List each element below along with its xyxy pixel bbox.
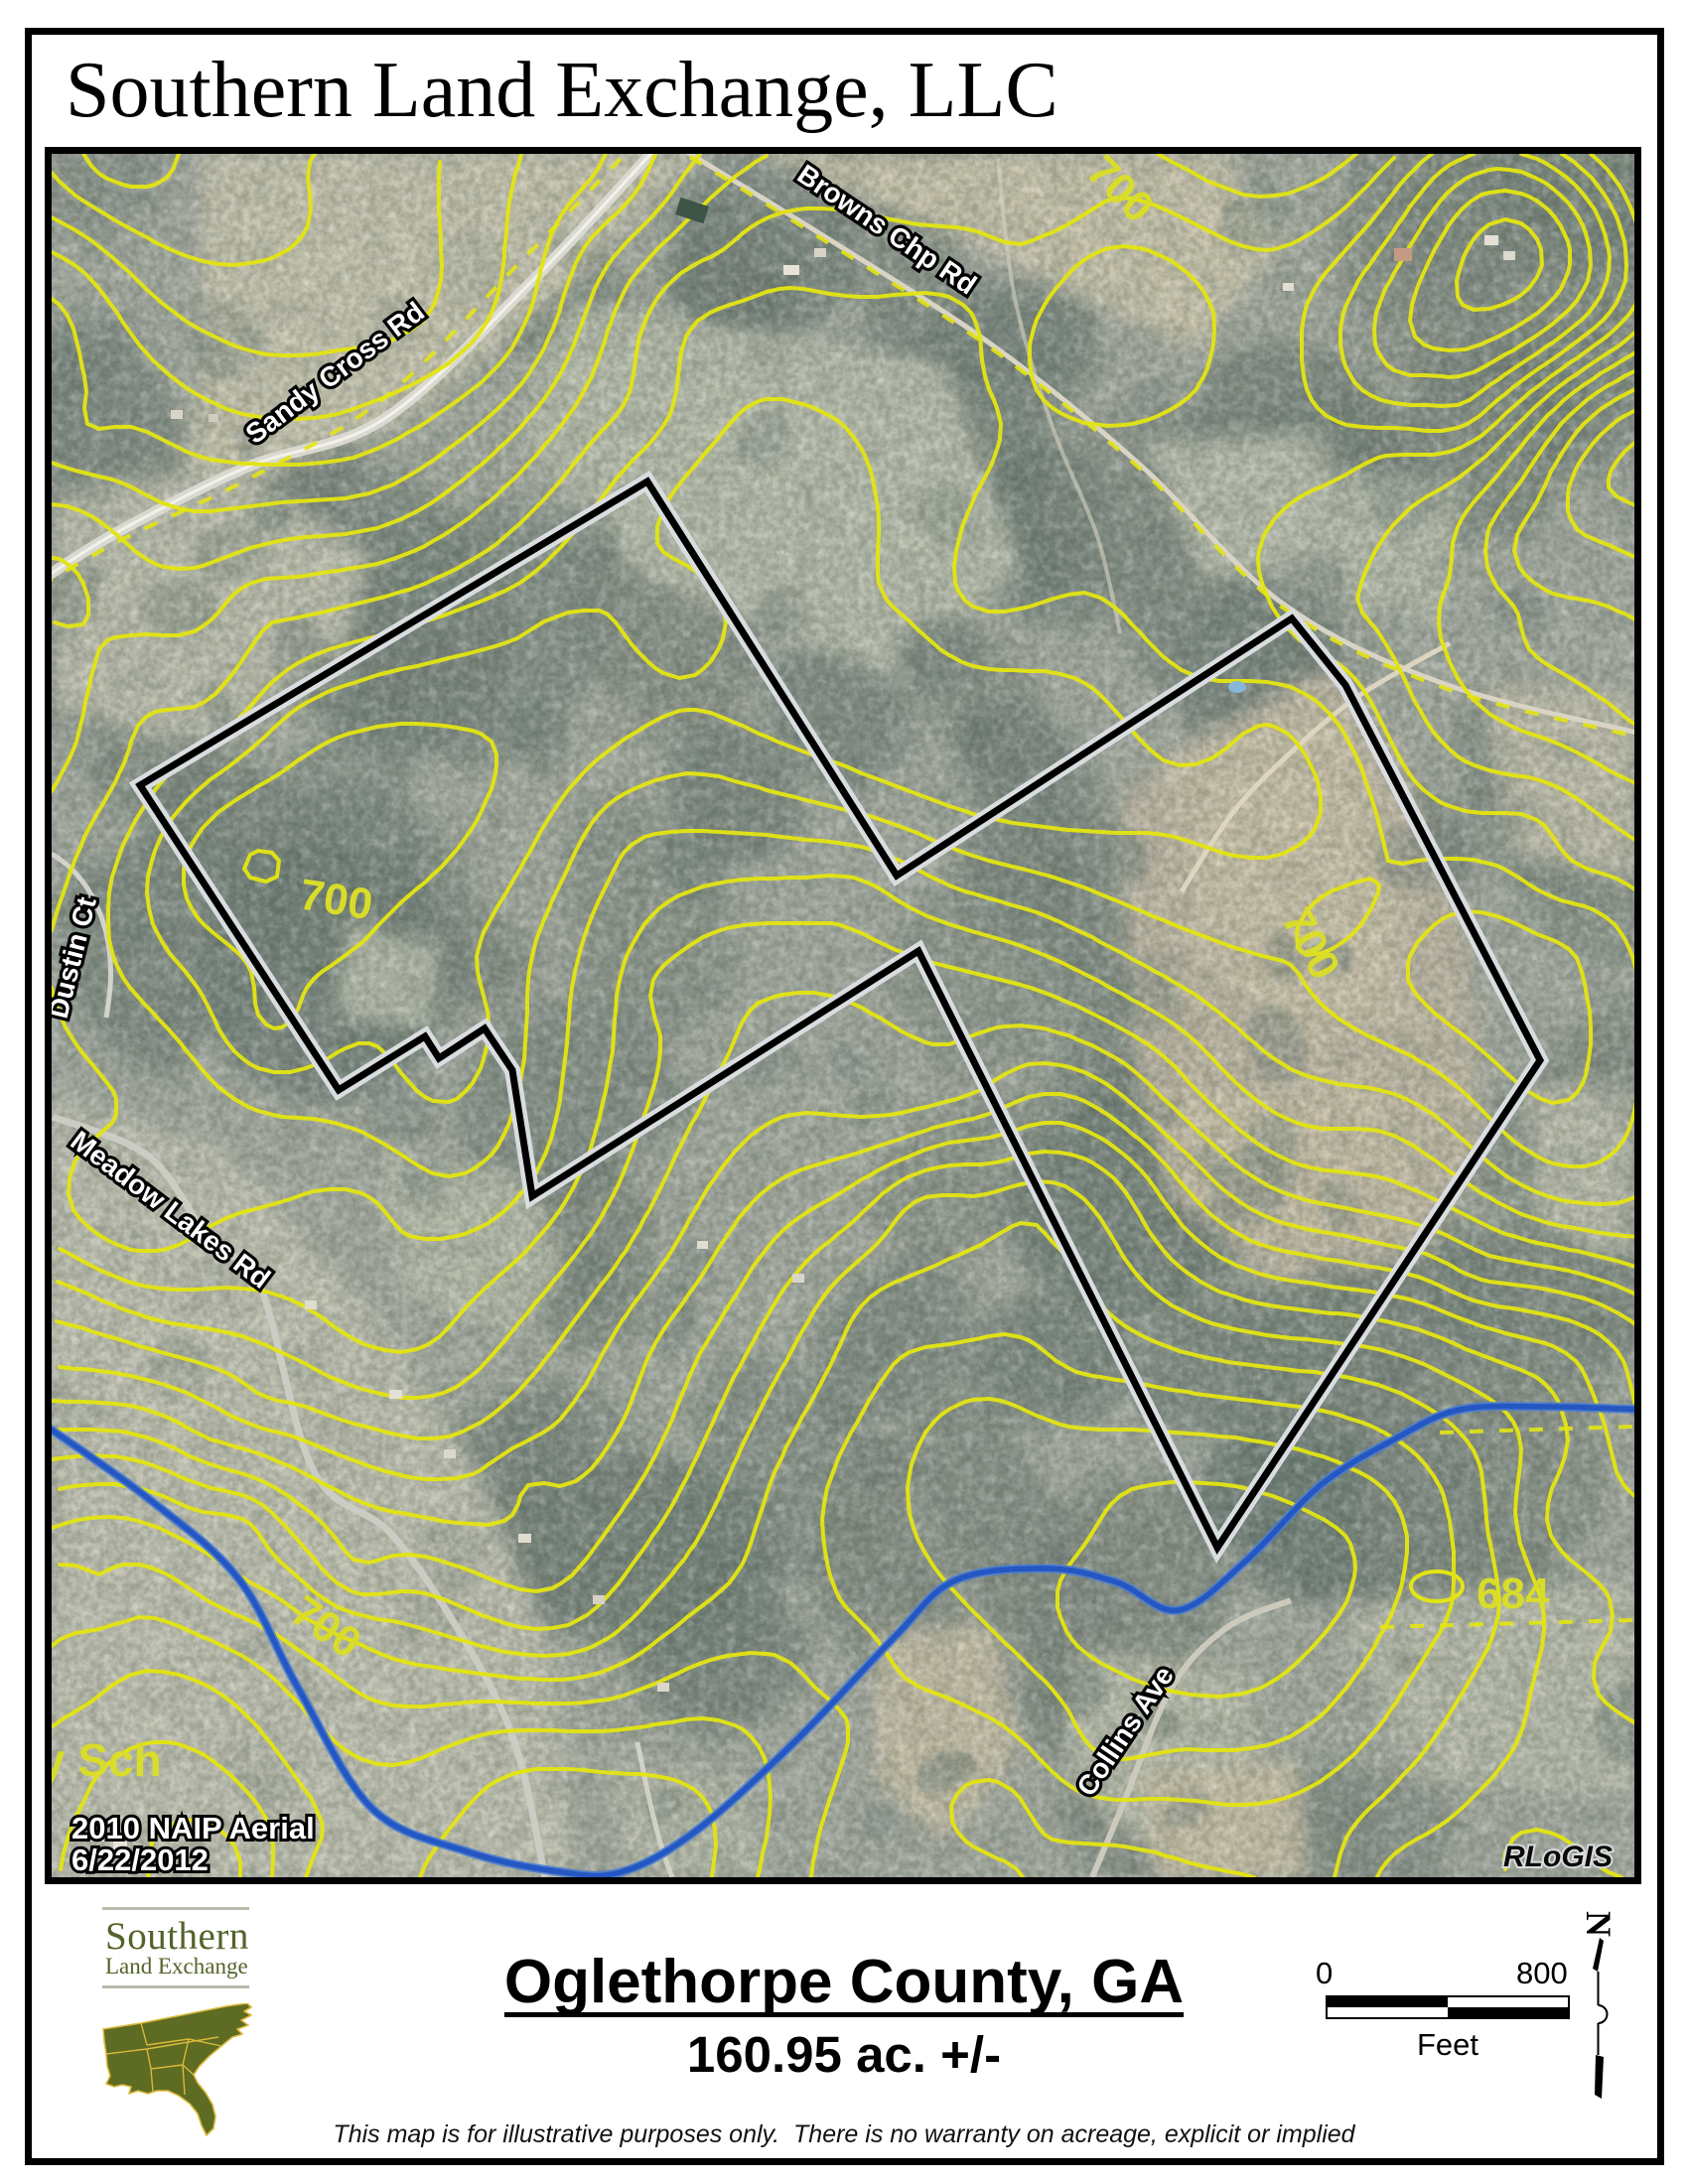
svg-text:6/22/2012: 6/22/2012 (71, 1843, 209, 1877)
svg-text:RLoGIS: RLoGIS (1503, 1841, 1613, 1873)
svg-text:684: 684 (1477, 1570, 1550, 1618)
svg-text:2010 NAIP Aerial: 2010 NAIP Aerial (71, 1811, 315, 1845)
svg-text:y Sch: y Sch (52, 1734, 162, 1786)
svg-text:N: N (1579, 1911, 1618, 1937)
